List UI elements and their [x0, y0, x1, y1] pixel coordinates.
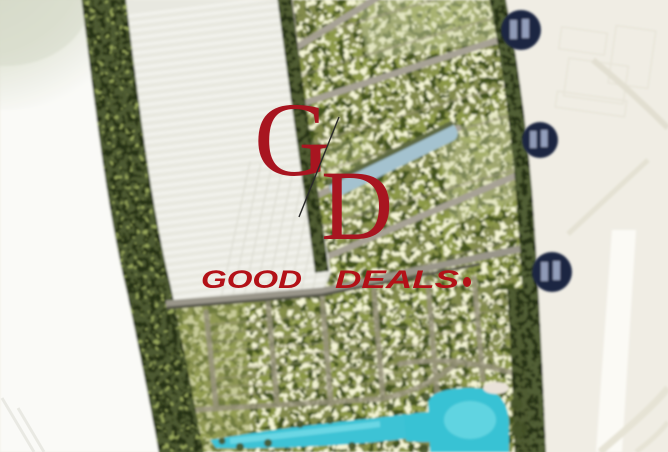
- svg-text:D: D: [321, 150, 393, 261]
- svg-text:DEALS: DEALS: [335, 266, 459, 294]
- svg-text:G: G: [254, 81, 331, 198]
- svg-text:GOOD: GOOD: [201, 266, 302, 294]
